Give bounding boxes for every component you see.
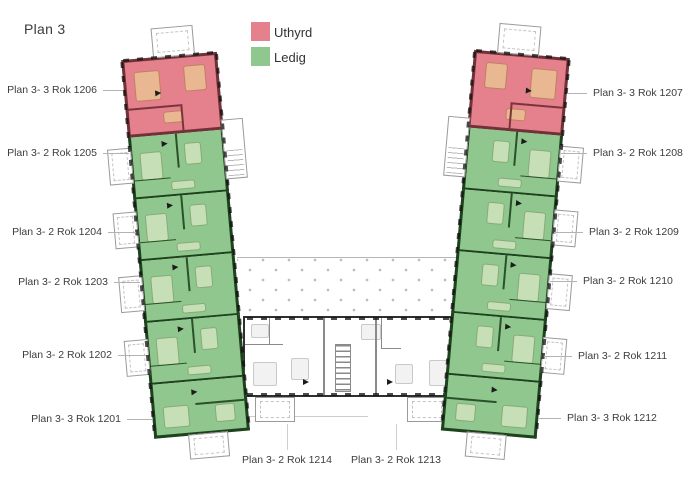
label-1210: Plan 3- 2 Rok 1210 bbox=[583, 275, 673, 287]
legend-swatch-uthyrd bbox=[251, 22, 270, 41]
stair-landing bbox=[221, 118, 248, 180]
label-1204: Plan 3- 2 Rok 1204 bbox=[12, 226, 102, 238]
legend-label-ledig: Ledig bbox=[274, 50, 306, 65]
balcony bbox=[546, 273, 573, 311]
balcony bbox=[118, 275, 145, 313]
apartment-1209[interactable] bbox=[457, 189, 558, 259]
apartment-1210[interactable] bbox=[451, 251, 552, 321]
leader-line bbox=[103, 90, 123, 91]
label-1205: Plan 3- 2 Rok 1205 bbox=[7, 147, 97, 159]
label-1213: Plan 3- 2 Rok 1213 bbox=[335, 454, 457, 466]
label-1203: Plan 3- 2 Rok 1203 bbox=[18, 276, 108, 288]
leader-line bbox=[567, 93, 587, 94]
leader-line bbox=[554, 232, 583, 233]
page-title: Plan 3 bbox=[24, 21, 66, 37]
apartment-1211[interactable] bbox=[446, 313, 547, 383]
apartment-1201[interactable] bbox=[150, 377, 250, 439]
floor-plan-screenshot: Plan 3 Uthyrd Ledig bbox=[0, 0, 696, 492]
apartment-1203[interactable] bbox=[139, 253, 240, 323]
balcony bbox=[551, 209, 578, 247]
label-1206: Plan 3- 3 Rok 1206 bbox=[7, 84, 97, 96]
leader-line bbox=[396, 424, 397, 450]
apartment-1207[interactable] bbox=[467, 50, 569, 136]
apartment-1205[interactable] bbox=[128, 130, 229, 200]
label-1211: Plan 3- 2 Rok 1211 bbox=[578, 350, 667, 362]
entrance-porch bbox=[255, 397, 295, 422]
entrance-porch bbox=[465, 432, 507, 460]
leader-line bbox=[287, 424, 288, 450]
label-1201: Plan 3- 3 Rok 1201 bbox=[31, 413, 121, 425]
apartment-1206[interactable] bbox=[121, 52, 223, 138]
label-1202: Plan 3- 2 Rok 1202 bbox=[22, 349, 112, 361]
entrance-porch bbox=[188, 431, 230, 459]
leader-line bbox=[108, 232, 136, 233]
roof-balcony bbox=[151, 25, 195, 59]
balcony bbox=[557, 146, 584, 184]
label-1208: Plan 3- 2 Rok 1208 bbox=[593, 147, 683, 159]
leader-line bbox=[127, 419, 153, 420]
apartment-1208[interactable] bbox=[462, 128, 563, 198]
wing-left bbox=[121, 52, 250, 439]
courtyard-edge-line bbox=[237, 257, 461, 258]
leader-line bbox=[103, 153, 129, 154]
leader-line bbox=[118, 355, 146, 356]
leader-line bbox=[550, 281, 577, 282]
leader-line bbox=[544, 356, 572, 357]
leader-line bbox=[561, 153, 587, 154]
courtyard-terrace bbox=[237, 258, 461, 316]
stairs bbox=[335, 344, 351, 392]
ground-line bbox=[232, 416, 368, 417]
legend-label-uthyrd: Uthyrd bbox=[274, 25, 312, 40]
leader-line bbox=[114, 282, 140, 283]
apartment-1204[interactable] bbox=[133, 191, 234, 261]
apartment-1212[interactable] bbox=[441, 375, 542, 439]
label-1207: Plan 3- 3 Rok 1207 bbox=[593, 87, 683, 99]
label-1214: Plan 3- 2 Rok 1214 bbox=[226, 454, 348, 466]
leader-line bbox=[539, 418, 561, 419]
roof-balcony bbox=[497, 23, 541, 57]
wing-right bbox=[441, 50, 570, 439]
label-1209: Plan 3- 2 Rok 1209 bbox=[589, 226, 679, 238]
label-1212: Plan 3- 3 Rok 1212 bbox=[567, 412, 657, 424]
balcony bbox=[124, 339, 151, 377]
apartment-1202[interactable] bbox=[144, 315, 245, 385]
legend-swatch-ledig bbox=[251, 47, 270, 66]
bottom-section bbox=[243, 316, 460, 397]
balcony bbox=[113, 211, 140, 249]
